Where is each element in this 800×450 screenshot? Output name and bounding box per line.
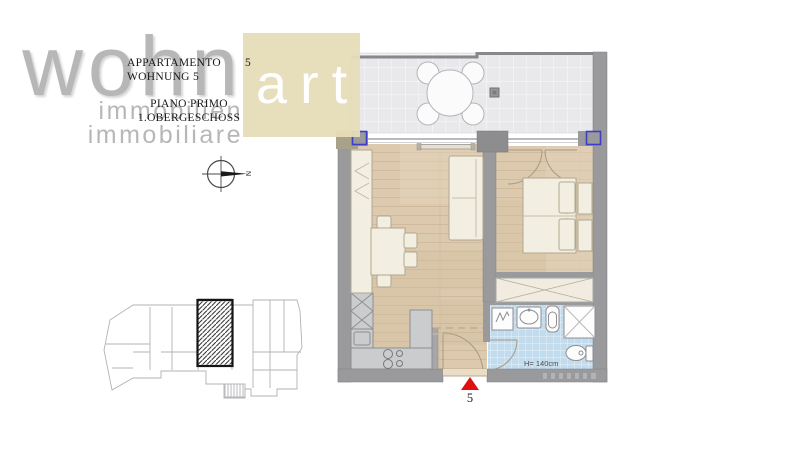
nightstand-icon <box>578 183 592 214</box>
toilet-tank <box>586 346 593 361</box>
title-wohnung-line: WOHNUNG 5 <box>127 70 251 84</box>
terrace-drain-icon <box>490 88 499 97</box>
logo-art-box: art <box>243 33 360 137</box>
stairs-icon <box>225 384 245 397</box>
title-apartment-number: 5 <box>245 56 251 70</box>
logo-art-text: art <box>256 51 360 116</box>
bedroom-closet-wall <box>496 272 593 278</box>
left-wall <box>338 131 351 382</box>
dining-table-icon <box>371 228 405 275</box>
chair-icon <box>377 275 391 287</box>
compass-north-label: N <box>244 171 251 176</box>
bathroom-left-wall <box>483 302 490 342</box>
entrance-marker: 5 <box>461 377 479 406</box>
chair-icon <box>404 252 417 267</box>
entrance-arrow-icon <box>461 377 479 390</box>
title-obergeschoss-line: 1.OBERGESCHOSS <box>127 111 251 125</box>
pillow-icon <box>559 219 575 250</box>
chair-icon <box>404 233 417 248</box>
entrance-marker-number: 5 <box>461 391 479 406</box>
kitchen-peninsula <box>410 310 432 348</box>
logo-tagline-immobiliare: immobiliare <box>0 123 243 148</box>
entrance-threshold <box>443 369 487 376</box>
bottom-wall-left <box>338 369 443 382</box>
bath-height-label: H= 140cm <box>524 359 558 368</box>
washbasin-tap <box>528 309 530 311</box>
kitchen-tall-unit <box>351 293 373 329</box>
chair-icon <box>377 216 391 228</box>
title-piano-line: PIANO PRIMO <box>127 97 251 111</box>
wall-cabinet <box>351 150 372 293</box>
washbasin-bowl <box>520 310 538 324</box>
sliding-door-icon <box>417 144 475 151</box>
floor-plan: H= 140cm <box>336 46 612 406</box>
partition-wall-living-bedroom <box>483 146 496 302</box>
title-spacer <box>127 84 251 97</box>
title-apartment-line: APPARTAMENTO 5 <box>127 56 251 70</box>
highlighted-unit <box>198 300 233 366</box>
center-pillar <box>477 131 508 152</box>
window-marker-right <box>587 132 601 145</box>
wardrobe-closet-icon <box>496 278 593 302</box>
title-block: APPARTAMENTO 5 WOHNUNG 5 PIANO PRIMO 1.O… <box>127 56 251 125</box>
nightstand-icon <box>578 220 592 251</box>
pillow-icon <box>559 182 575 213</box>
title-apartment-label: APPARTAMENTO <box>127 56 221 70</box>
floorplan-page: H= 140cm art wohn immobilien immobiliare… <box>0 0 800 450</box>
north-compass-icon: N <box>192 150 256 198</box>
round-table-icon <box>427 70 473 116</box>
site-key-plan <box>98 292 310 414</box>
